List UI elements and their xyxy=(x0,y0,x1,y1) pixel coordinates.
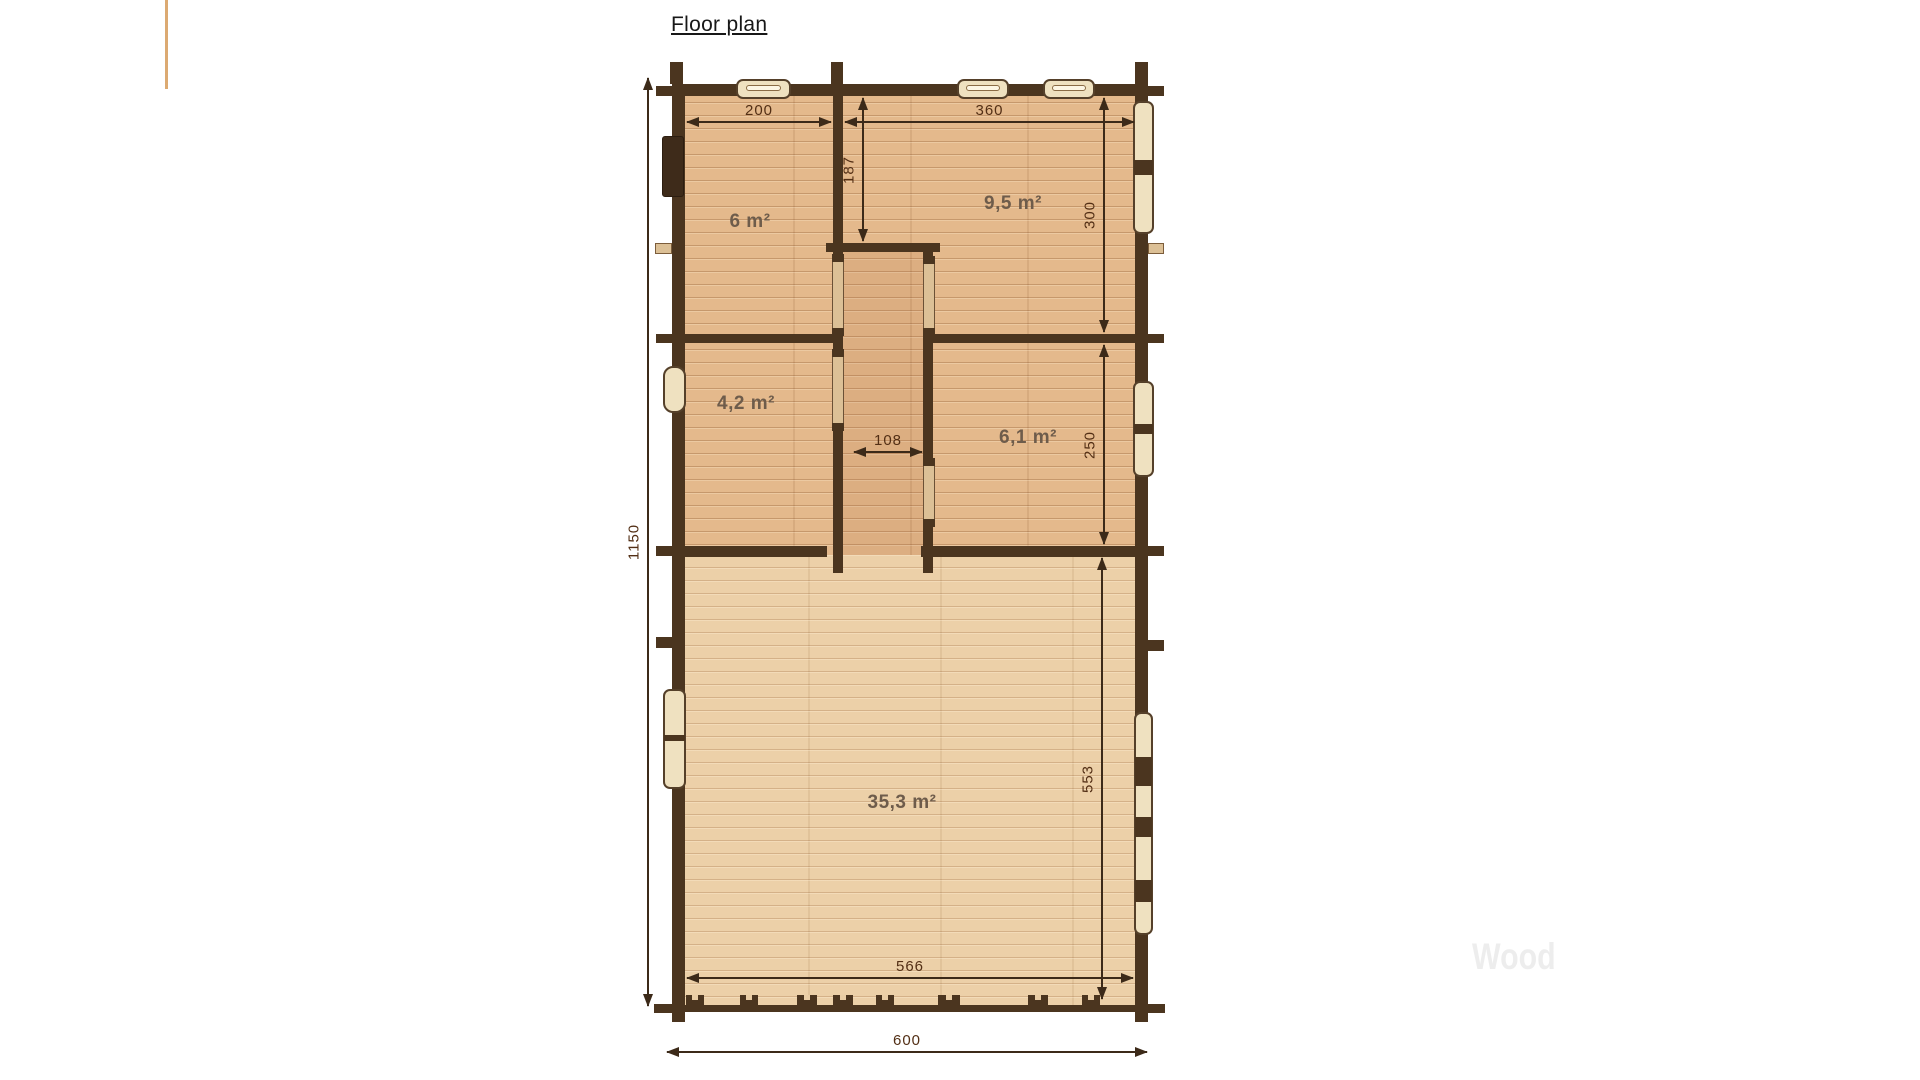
dimension-hall-depth: 187 xyxy=(858,98,868,241)
log-end-stub xyxy=(654,1004,672,1013)
window xyxy=(663,366,686,413)
sill-post xyxy=(938,995,960,1005)
dimension-label: 200 xyxy=(745,102,773,119)
log-end-stub xyxy=(1135,62,1148,84)
room-area-label: 6,1 m² xyxy=(999,427,1057,449)
door-opening xyxy=(832,349,844,431)
window-frame-mark xyxy=(1135,880,1152,902)
log-end-stub xyxy=(656,637,672,648)
hallway-floor xyxy=(843,252,923,555)
dimension-label: 566 xyxy=(896,958,924,975)
log-end-stub xyxy=(1148,243,1164,254)
log-end-stub xyxy=(1148,1004,1165,1013)
log-end-stub xyxy=(1148,640,1164,651)
window xyxy=(1043,79,1095,99)
log-end-stub xyxy=(1148,546,1164,556)
hall-wall-end-stub-left xyxy=(833,557,843,573)
dimension-total-height: 1150 xyxy=(643,78,653,1006)
dimension-label: 553 xyxy=(1080,764,1097,792)
dimension-right-mid-height: 250 xyxy=(1099,345,1109,544)
dimension-label: 250 xyxy=(1082,430,1099,458)
log-end-stub xyxy=(831,62,843,84)
dimension-right-upper-height: 300 xyxy=(1099,98,1109,332)
window-frame-mark xyxy=(1134,160,1153,175)
mid-divider-wall-left xyxy=(672,334,843,343)
living-room-top-wall-left xyxy=(672,546,827,557)
hall-wall-end-stub-right xyxy=(923,557,933,573)
window xyxy=(957,79,1009,99)
sill-post xyxy=(740,995,758,1005)
floor-area-living-room xyxy=(678,555,1142,1007)
dimension-label: 1150 xyxy=(626,524,643,560)
window-frame-mark xyxy=(1135,757,1152,786)
mid-divider-wall-right xyxy=(923,334,1148,343)
window-frame-mark xyxy=(1134,424,1153,434)
hallway-top-wall xyxy=(826,243,940,252)
watermark-text: Wood xyxy=(1472,936,1556,978)
sill-post xyxy=(833,995,853,1005)
dimension-label: 300 xyxy=(1082,201,1099,229)
room-area-label: 4,2 m² xyxy=(717,393,775,415)
living-room-top-wall-right xyxy=(921,546,1148,557)
log-end-stub xyxy=(655,243,672,254)
floor-plan-drawing: 200 360 187 300 250 108 1150 553 xyxy=(0,0,1920,1080)
door-opening xyxy=(923,256,935,336)
log-end-stub xyxy=(1148,86,1164,96)
dimension-label: 600 xyxy=(893,1032,921,1049)
dimension-label: 187 xyxy=(841,155,858,183)
window-frame-mark xyxy=(664,735,685,741)
log-end-stub xyxy=(656,86,672,96)
floor-plan-page: Floor plan xyxy=(0,0,1920,1080)
log-end-stub xyxy=(1148,334,1164,343)
log-end-stub xyxy=(656,334,672,343)
window-shuttered xyxy=(662,136,684,197)
dimension-hall-width: 108 xyxy=(854,447,922,457)
log-end-stub xyxy=(670,62,683,84)
sill-post xyxy=(686,995,704,1005)
room-area-label: 9,5 m² xyxy=(984,193,1042,215)
dimension-label: 108 xyxy=(874,432,902,449)
dimension-living-room-height: 553 xyxy=(1097,558,1107,999)
dimension-label: 360 xyxy=(975,102,1003,119)
sill-post xyxy=(876,995,894,1005)
door-opening xyxy=(923,458,935,527)
door-opening xyxy=(832,254,844,336)
dimension-top-left-width: 200 xyxy=(687,117,831,127)
window xyxy=(736,79,791,99)
dimension-inner-width: 566 xyxy=(687,973,1133,983)
exterior-wall-bottom-sill xyxy=(672,1005,1148,1012)
window-frame-mark xyxy=(1135,817,1152,837)
log-end-stub xyxy=(656,546,672,556)
dimension-top-right-width: 360 xyxy=(845,117,1134,127)
dimension-total-width: 600 xyxy=(667,1047,1147,1057)
room-area-label: 35,3 m² xyxy=(868,792,937,814)
room-area-label: 6 m² xyxy=(729,211,770,233)
sill-post xyxy=(797,995,817,1005)
sill-post xyxy=(1028,995,1048,1005)
